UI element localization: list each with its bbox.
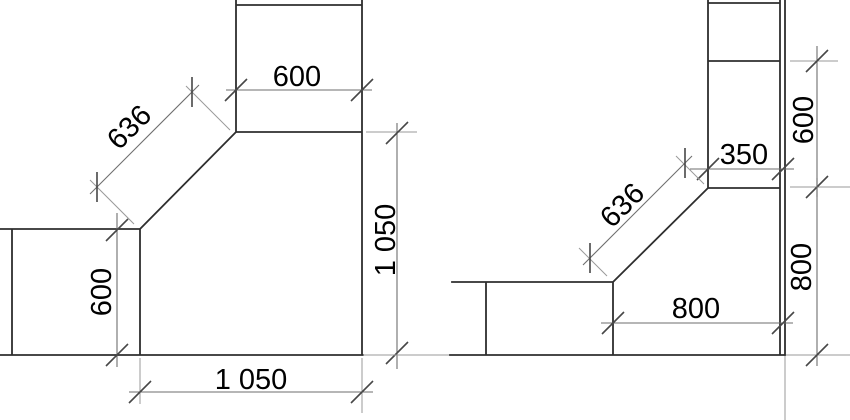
elevation-drawing: 600 636 600 1 050 1 050 (0, 0, 850, 420)
right-dim-column-width-label: 350 (720, 139, 768, 171)
right-dim-column-width: 350 (690, 139, 794, 180)
left-dim-left-height-label: 600 (86, 268, 118, 316)
left-dim-top-width-label: 600 (273, 61, 321, 93)
left-dim-bottom-width: 1 050 (129, 358, 373, 413)
left-unit-outline (0, 0, 363, 355)
right-dim-upper-height: 600 (788, 46, 850, 198)
left-dim-diagonal-extensions (90, 86, 230, 224)
right-dim-bottom-width: 800 (601, 293, 794, 334)
right-dim-upper-height-label: 600 (788, 96, 820, 144)
right-dim-lower-height: 800 (786, 178, 828, 366)
left-dim-bottom-width-label: 1 050 (215, 364, 288, 396)
right-dim-bottom-width-label: 800 (672, 293, 720, 325)
right-dim-lower-height-label: 800 (786, 243, 818, 291)
right-dim-diagonal: 636 (579, 148, 704, 276)
left-dim-left-height: 600 (86, 213, 128, 367)
shared-extension-lines (363, 355, 850, 420)
left-dim-right-height: 1 050 (366, 122, 417, 369)
left-dim-diagonal: 636 (90, 77, 230, 224)
left-elevation-view: 600 636 600 1 050 1 050 (0, 0, 417, 413)
left-dim-right-height-label: 1 050 (370, 204, 402, 277)
right-dim-diagonal-label: 636 (594, 177, 651, 234)
right-elevation-view: 350 636 600 800 800 (450, 0, 850, 366)
left-dim-top-width: 600 (225, 61, 373, 101)
left-dim-diagonal-label: 636 (101, 99, 158, 156)
technical-drawing-canvas: 600 636 600 1 050 1 050 (0, 0, 850, 420)
right-unit-outline (450, 0, 785, 355)
